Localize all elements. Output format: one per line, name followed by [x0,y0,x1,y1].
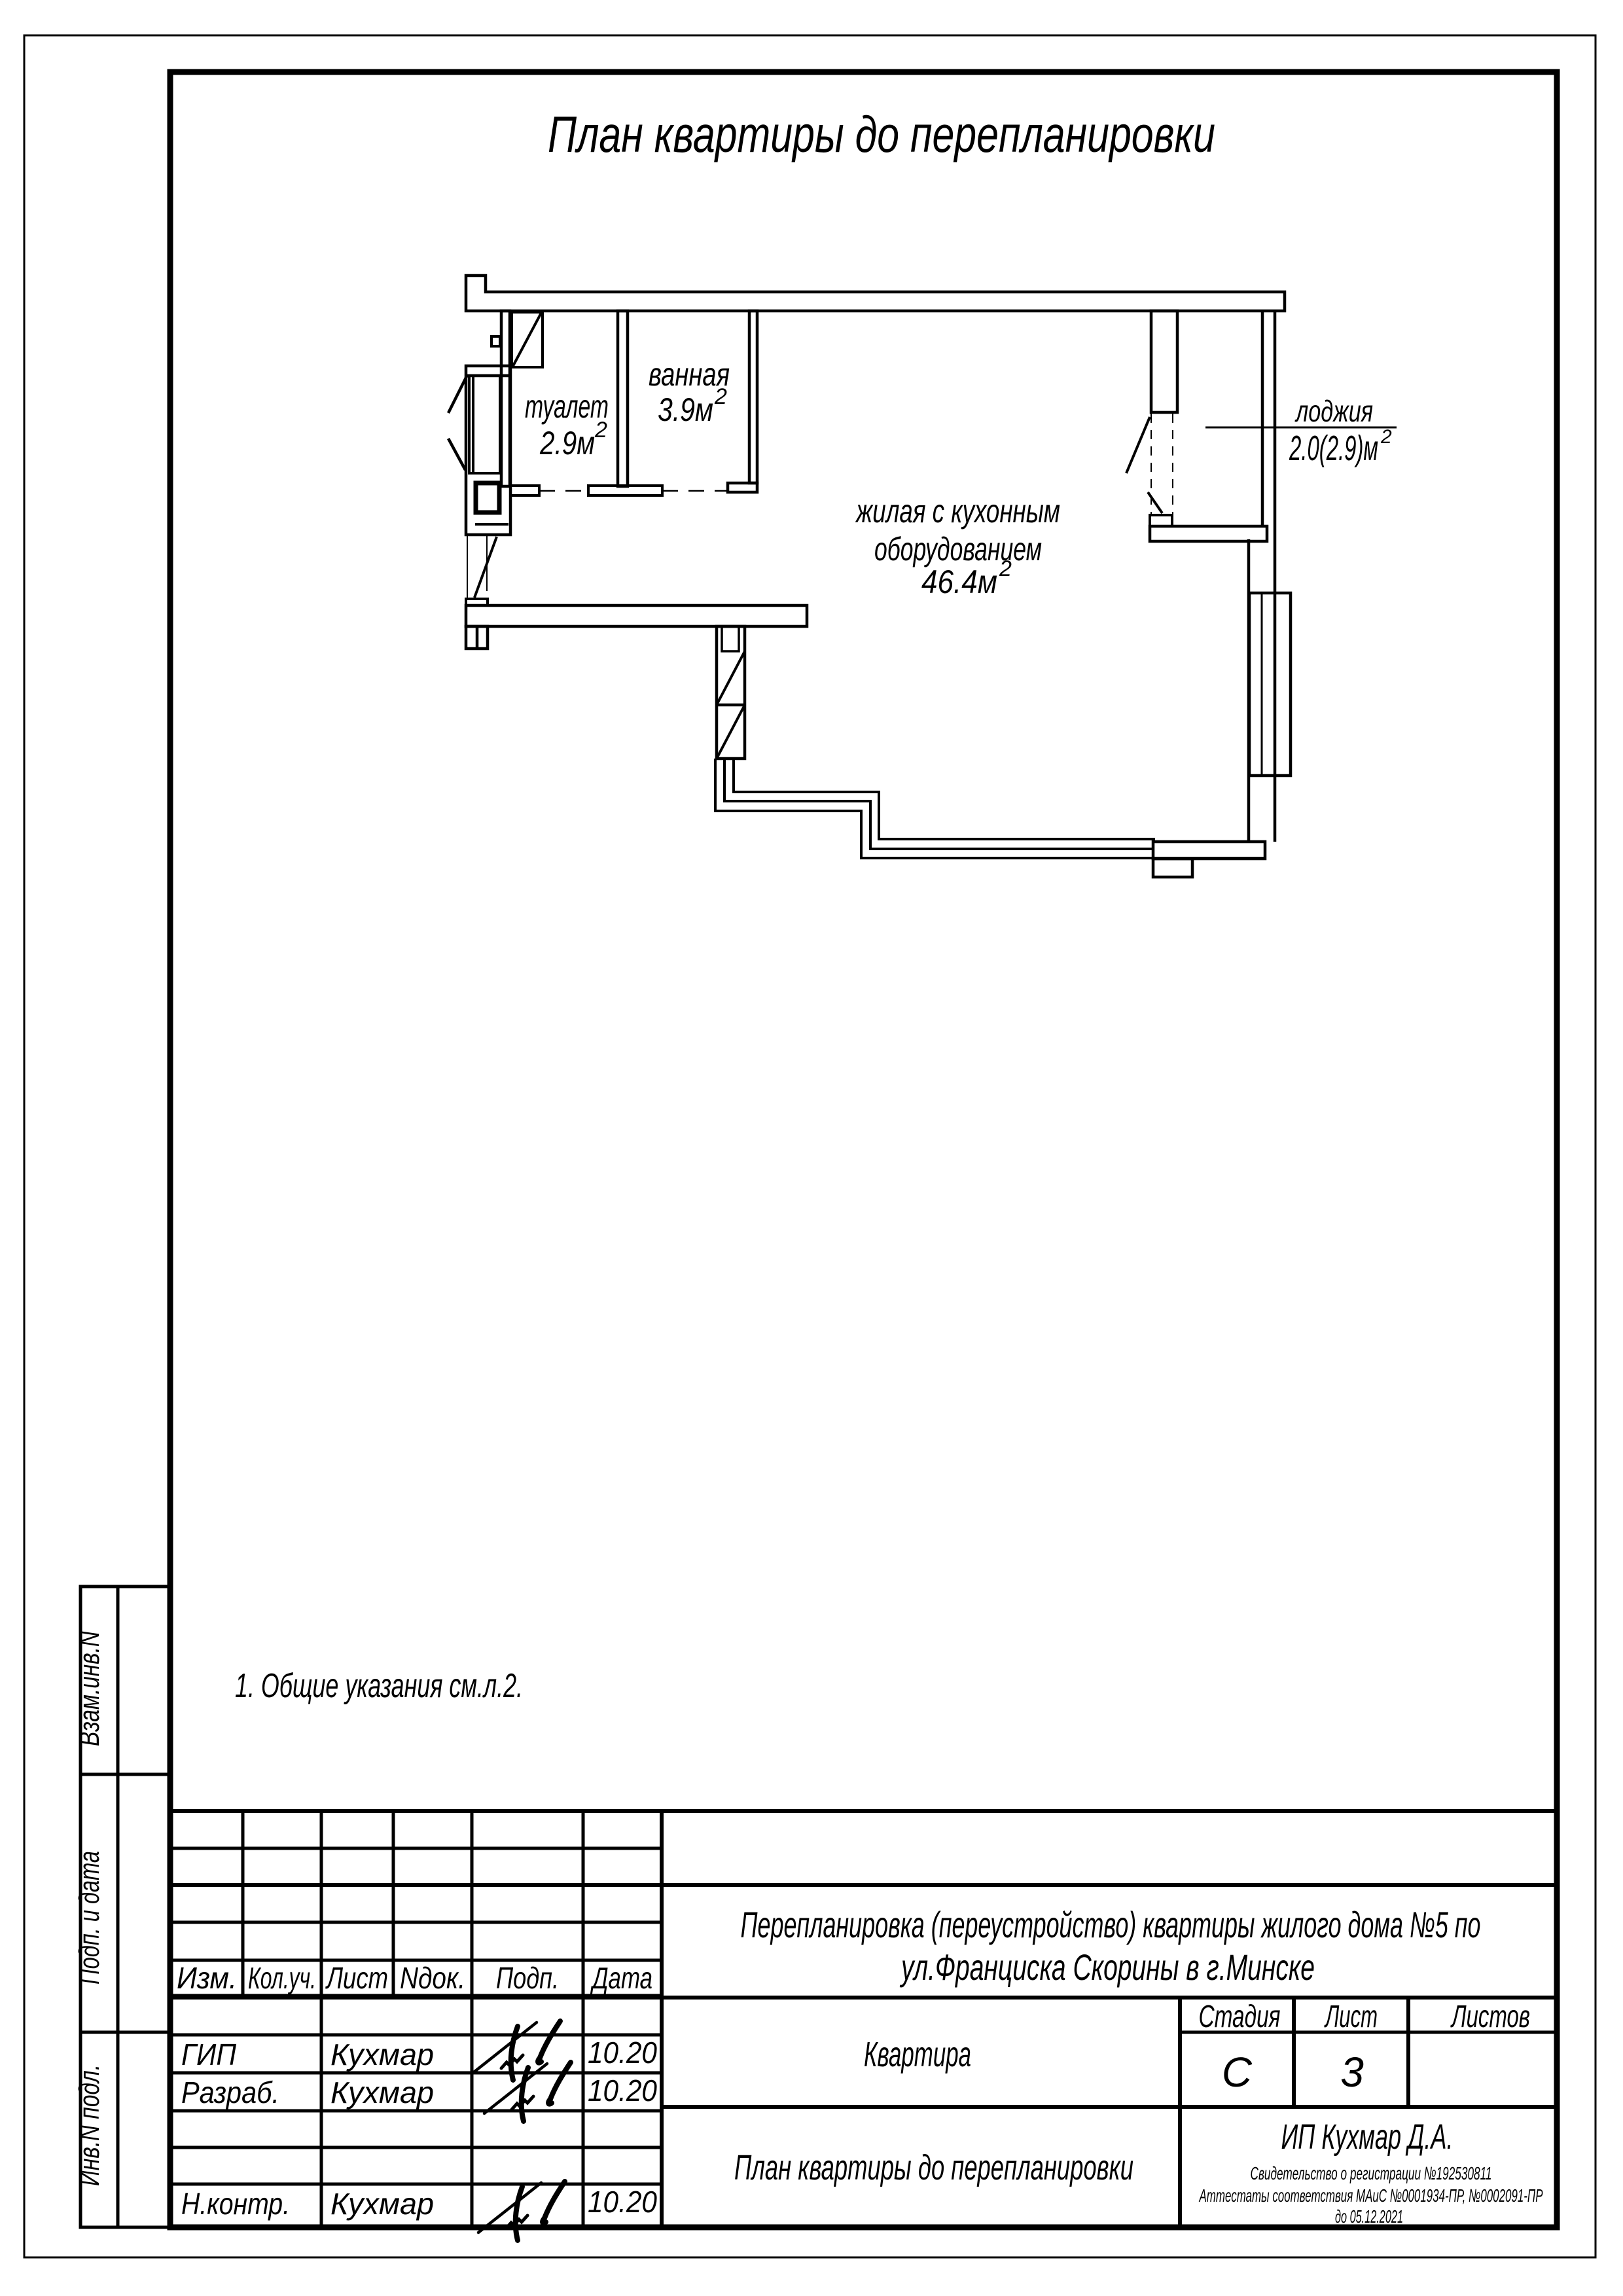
svg-text:С: С [1222,2049,1253,2096]
svg-text:Изм.: Изм. [177,1961,237,1995]
svg-text:10.20: 10.20 [588,2036,657,2070]
svg-text:Кухмар: Кухмар [330,2187,434,2221]
svg-text:10.20: 10.20 [588,2185,657,2219]
svg-text:лоджия: лоджия [1294,394,1373,428]
svg-text:2: 2 [999,556,1012,581]
svg-text:Разраб.: Разраб. [181,2075,279,2109]
svg-text:ГИП: ГИП [181,2037,237,2072]
svg-text:Перепланировка (переустройство: Перепланировка (переустройство) квартиры… [741,1904,1481,1945]
svg-text:Лист: Лист [325,1961,388,1995]
svg-text:2.0(2.9)м: 2.0(2.9)м [1289,429,1378,468]
svg-text:2: 2 [594,418,607,442]
svg-text:Стадия: Стадия [1199,2000,1281,2034]
svg-text:Квартира: Квартира [864,2035,971,2074]
svg-text:10.20: 10.20 [588,2073,657,2108]
svg-text:Аттестаты соответствия МАиС №0: Аттестаты соответствия МАиС №0001934-ПР,… [1198,2185,1543,2206]
svg-text:Лист: Лист [1324,2000,1378,2034]
svg-text:оборудованием: оборудованием [874,531,1042,567]
svg-text:Листов: Листов [1450,2000,1530,2034]
svg-text:Н.контр.: Н.контр. [181,2187,290,2221]
svg-text:План квартиры до перепланировк: План квартиры до перепланировки [734,2148,1133,2187]
svg-text:1. Общие указания см.л.2.: 1. Общие указания см.л.2. [235,1667,523,1705]
svg-text:Дата: Дата [590,1961,652,1995]
svg-text:Свидетельство о регистрации №1: Свидетельство о регистрации №192530811 [1251,2163,1492,2183]
svg-text:Взам.инв.N: Взам.инв.N [73,1631,105,1746]
svg-text:План квартиры до перепланировк: План квартиры до перепланировки [548,105,1215,163]
svg-text:3.9м: 3.9м [658,391,713,428]
svg-text:Nдок.: Nдок. [400,1961,465,1995]
svg-text:46.4м: 46.4м [921,564,997,600]
svg-text:Кухмар: Кухмар [330,2037,434,2072]
svg-text:2.9м: 2.9м [539,425,595,461]
svg-text:Подп.: Подп. [496,1961,559,1995]
svg-text:Инв.N подл.: Инв.N подл. [73,2064,105,2186]
svg-text:ул.Франциска Скорины в г.Минск: ул.Франциска Скорины в г.Минске [899,1946,1315,1988]
svg-text:Кол.уч.: Кол.уч. [248,1961,316,1995]
svg-text:жилая с кухонным: жилая с кухонным [855,493,1060,529]
svg-text:Подп. и дата: Подп. и дата [73,1851,105,1984]
svg-text:ИП Кухмар Д.А.: ИП Кухмар Д.А. [1281,2117,1454,2157]
svg-text:2: 2 [714,384,727,409]
svg-text:до 05.12.2021: до 05.12.2021 [1335,2206,1403,2227]
svg-text:2: 2 [1380,426,1392,448]
svg-text:3: 3 [1340,2049,1364,2096]
svg-text:Кухмар: Кухмар [330,2075,434,2109]
